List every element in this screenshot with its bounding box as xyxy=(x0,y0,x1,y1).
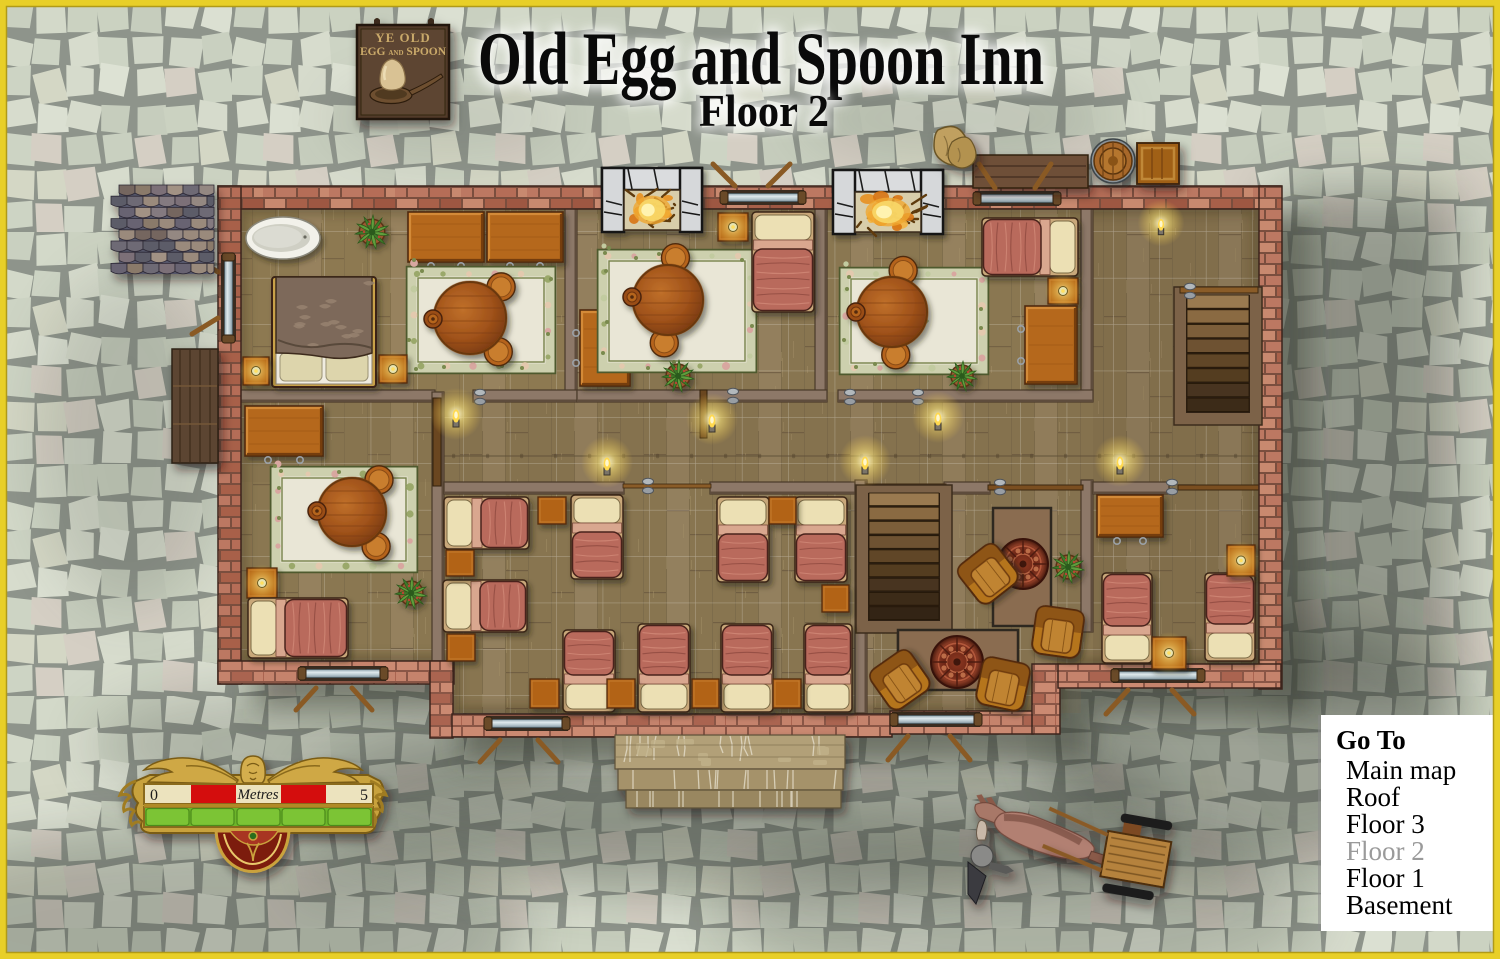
svg-text:Basement: Basement xyxy=(1346,890,1453,920)
svg-text:Metres: Metres xyxy=(236,787,278,803)
svg-text:Floor 1: Floor 1 xyxy=(1346,863,1425,893)
svg-text:Go To: Go To xyxy=(1336,725,1406,755)
svg-text:5: 5 xyxy=(360,787,368,804)
svg-text:EGG AND SPOON: EGG AND SPOON xyxy=(360,46,447,58)
svg-text:Floor 2: Floor 2 xyxy=(1346,836,1425,866)
svg-text:0: 0 xyxy=(150,787,158,804)
svg-text:Main map: Main map xyxy=(1346,755,1456,785)
svg-text:Roof: Roof xyxy=(1346,782,1400,812)
svg-text:YE OLD: YE OLD xyxy=(375,30,430,45)
svg-text:Floor 3: Floor 3 xyxy=(1346,809,1425,839)
svg-text:Floor 2: Floor 2 xyxy=(699,85,829,136)
